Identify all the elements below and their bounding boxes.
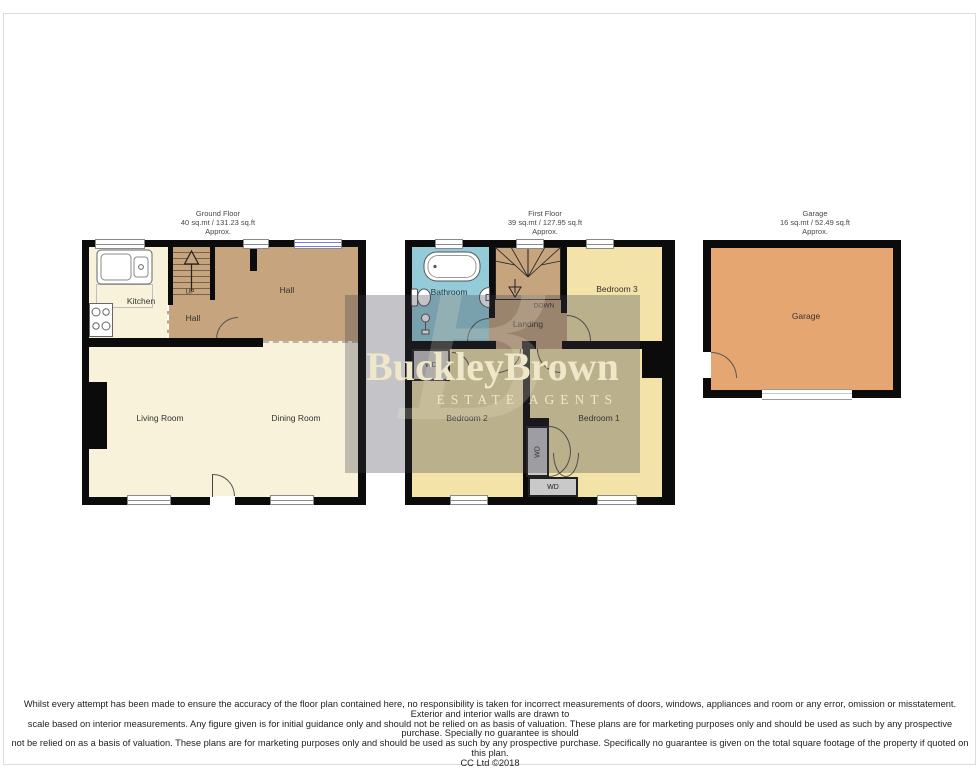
closet-wd-label: WD — [547, 484, 559, 491]
disclaimer-copyright: CC Ltd ©2018 — [10, 759, 970, 769]
living-room-label: Living Room — [136, 413, 183, 423]
kitchen-living-wall — [82, 338, 263, 347]
bedroom3-label: Bedroom 3 — [596, 284, 638, 294]
stairs-up-label: UP — [185, 289, 194, 296]
garage-area: 16 sq.mt / 52.49 sq.ft — [715, 218, 915, 227]
dining-room-label: Dining Room — [271, 413, 320, 423]
first-floor-area: 39 sq.mt / 127.95 sq.ft — [445, 218, 645, 227]
disclaimer-line-2: scale based on interior measurements. An… — [10, 720, 970, 740]
watermark: B BuckleyBrown ESTATE AGENTS — [345, 295, 640, 473]
first-floor-approx: Approx. — [445, 227, 645, 236]
window — [270, 495, 314, 505]
first-floor-title: First Floor — [445, 209, 645, 218]
window — [127, 495, 171, 505]
bathtub-icon — [423, 251, 481, 282]
watermark-brand-name: BuckleyBrown — [345, 347, 640, 387]
disclaimer: Whilst every attempt has been made to en… — [10, 700, 970, 769]
garage-door-opening — [762, 389, 852, 400]
stairs-hall-wall — [210, 247, 215, 300]
window — [586, 239, 614, 249]
stove-icon — [89, 303, 113, 337]
hall-label: Hall — [280, 285, 295, 295]
first-floor-header: First Floor 39 sq.mt / 127.95 sq.ft Appr… — [445, 209, 645, 236]
closet-wd-bottom: WD — [528, 477, 578, 497]
garage-approx: Approx. — [715, 227, 915, 236]
hall-small-label: Hall — [186, 313, 201, 323]
window — [516, 239, 544, 249]
window — [95, 239, 145, 249]
garage-label: Garage — [792, 311, 820, 321]
window — [450, 495, 488, 505]
ground-floor-header: Ground Floor 40 sq.mt / 131.23 sq.ft App… — [118, 209, 318, 236]
watermark-tagline: ESTATE AGENTS — [436, 392, 618, 408]
kitchen-label: Kitchen — [127, 296, 155, 306]
window — [435, 239, 463, 249]
kitchen-sink-icon — [96, 249, 153, 285]
window — [243, 239, 269, 249]
stairs-down — [495, 247, 561, 300]
chimney-breast — [89, 382, 107, 449]
disclaimer-line-1: Whilst every attempt has been made to en… — [10, 700, 970, 720]
ground-floor-area: 40 sq.mt / 131.23 sq.ft — [118, 218, 318, 227]
garage-header: Garage 16 sq.mt / 52.49 sq.ft Approx. — [715, 209, 915, 236]
garage-title: Garage — [715, 209, 915, 218]
window — [597, 495, 637, 505]
ground-floor-approx: Approx. — [118, 227, 318, 236]
front-door-opening — [210, 496, 235, 505]
hall-wall-stub — [250, 247, 257, 271]
garage-side-door-opening — [703, 352, 711, 378]
floor-plan-page: Ground Floor 40 sq.mt / 131.23 sq.ft App… — [0, 0, 980, 769]
kitchen-hall-opening — [167, 305, 173, 339]
bedroom1-wall-protrusion — [642, 349, 662, 378]
window-glazed — [294, 239, 342, 249]
ground-floor-title: Ground Floor — [118, 209, 318, 218]
disclaimer-line-3: not be relied on as a basis of valuation… — [10, 739, 970, 759]
